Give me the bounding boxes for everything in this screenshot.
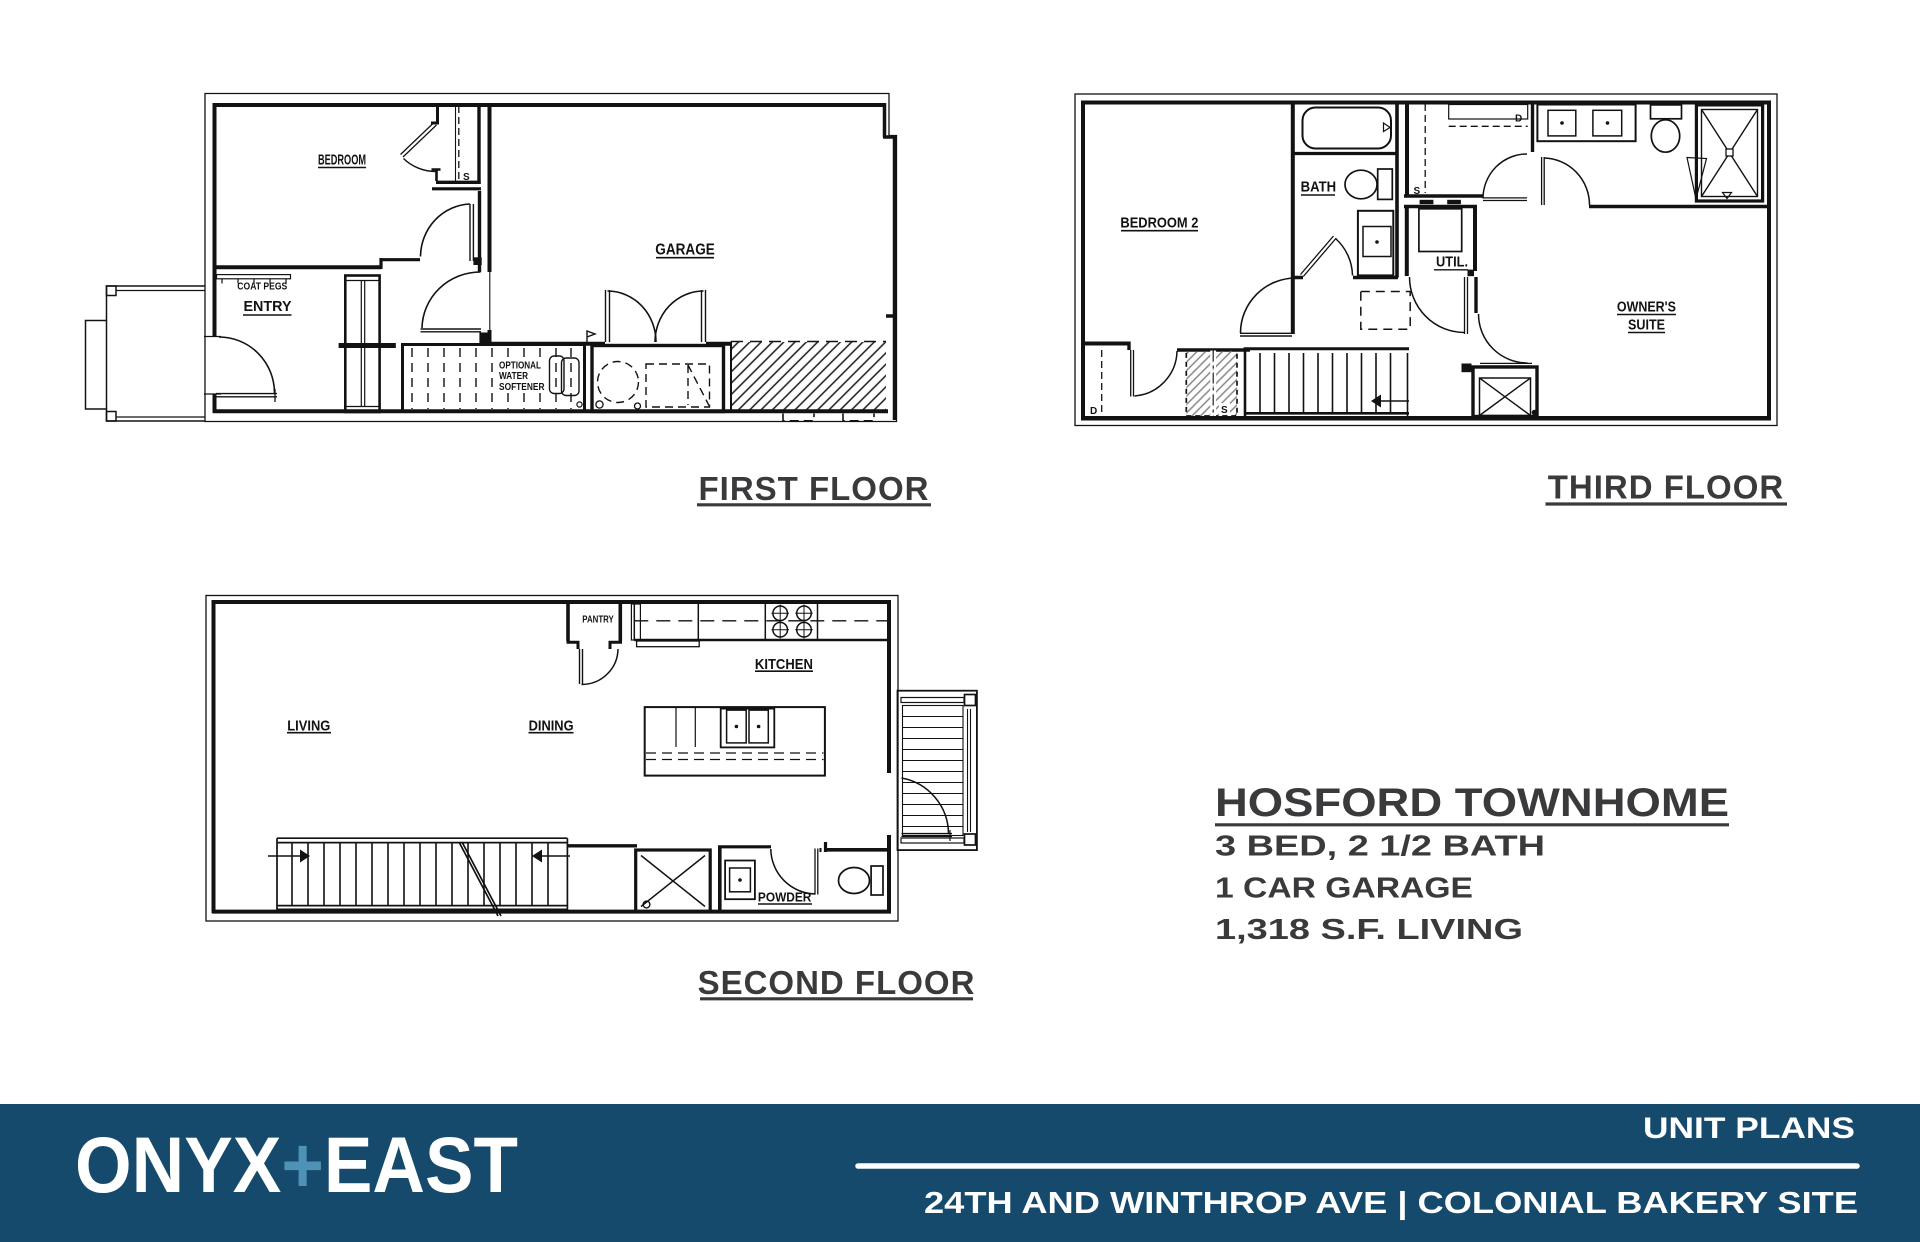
svg-text:D: D bbox=[1090, 406, 1097, 417]
svg-text:ONYX+EAST: ONYX+EAST bbox=[75, 1120, 518, 1209]
svg-text:BEDROOM: BEDROOM bbox=[318, 152, 366, 169]
svg-text:WATER: WATER bbox=[499, 371, 529, 382]
svg-text:HOSFORD TOWNHOME: HOSFORD TOWNHOME bbox=[1215, 781, 1729, 825]
svg-text:OWNER'S: OWNER'S bbox=[1617, 300, 1676, 316]
svg-text:THIRD FLOOR: THIRD FLOOR bbox=[1548, 469, 1784, 506]
svg-text:POWDER: POWDER bbox=[758, 890, 812, 905]
svg-text:D: D bbox=[1515, 114, 1522, 125]
svg-text:S: S bbox=[1221, 405, 1228, 416]
svg-text:BATH: BATH bbox=[1301, 179, 1337, 196]
svg-text:UNIT PLANS: UNIT PLANS bbox=[1643, 1112, 1855, 1145]
svg-text:3 BED, 2 1/2 BATH: 3 BED, 2 1/2 BATH bbox=[1215, 831, 1545, 863]
svg-text:BEDROOM 2: BEDROOM 2 bbox=[1120, 215, 1198, 232]
svg-text:ENTRY: ENTRY bbox=[244, 298, 292, 315]
svg-text:SUITE: SUITE bbox=[1628, 318, 1665, 334]
svg-text:S: S bbox=[463, 172, 470, 183]
svg-text:OPTIONAL: OPTIONAL bbox=[499, 361, 541, 372]
svg-text:FIRST FLOOR: FIRST FLOOR bbox=[699, 470, 930, 507]
svg-text:GARAGE: GARAGE bbox=[655, 242, 715, 259]
svg-text:1,318 S.F. LIVING: 1,318 S.F. LIVING bbox=[1215, 914, 1523, 946]
svg-text:PANTRY: PANTRY bbox=[582, 614, 614, 626]
svg-text:COAT PEGS: COAT PEGS bbox=[237, 281, 287, 293]
svg-text:SOFTENER: SOFTENER bbox=[499, 382, 545, 393]
svg-text:S: S bbox=[1414, 186, 1421, 197]
svg-text:UTIL.: UTIL. bbox=[1436, 255, 1468, 271]
svg-text:SECOND FLOOR: SECOND FLOOR bbox=[698, 964, 976, 1001]
svg-text:24TH AND WINTHROP AVE | COLONI: 24TH AND WINTHROP AVE | COLONIAL BAKERY … bbox=[924, 1186, 1858, 1220]
svg-text:1 CAR GARAGE: 1 CAR GARAGE bbox=[1215, 872, 1473, 904]
